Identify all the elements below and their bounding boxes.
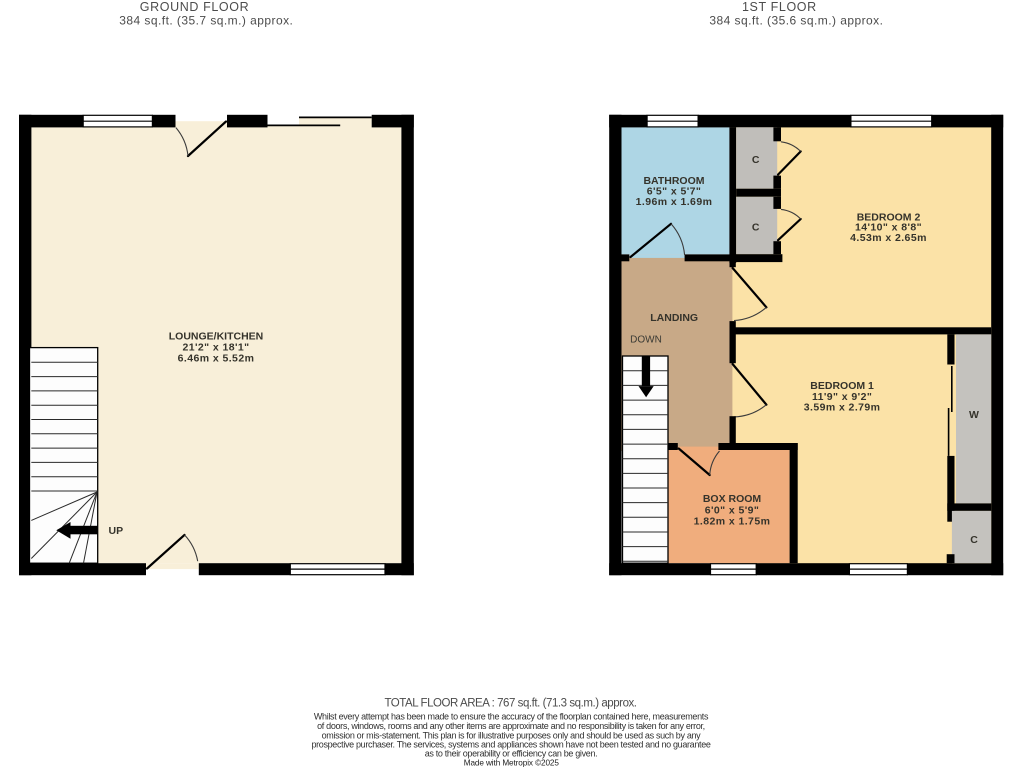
svg-text:C: C	[752, 154, 760, 166]
svg-text:UP: UP	[109, 525, 124, 537]
svg-text:GROUND FLOOR: GROUND FLOOR	[140, 0, 250, 14]
svg-text:W: W	[969, 409, 979, 421]
svg-text:1.96m x 1.69m: 1.96m x 1.69m	[636, 196, 713, 208]
svg-text:LANDING: LANDING	[650, 312, 698, 324]
svg-text:6.46m x 5.52m: 6.46m x 5.52m	[178, 353, 255, 365]
svg-text:3.59m x 2.79m: 3.59m x 2.79m	[804, 402, 881, 414]
svg-text:384 sq.ft. (35.6 sq.m.) approx: 384 sq.ft. (35.6 sq.m.) approx.	[709, 14, 883, 28]
svg-text:C: C	[970, 534, 978, 546]
svg-text:1ST FLOOR: 1ST FLOOR	[742, 0, 817, 14]
svg-text:C: C	[752, 222, 760, 234]
svg-text:Made with Metropix ©2025: Made with Metropix ©2025	[464, 758, 560, 767]
svg-text:4.53m x 2.65m: 4.53m x 2.65m	[850, 232, 927, 244]
svg-text:TOTAL FLOOR AREA : 767 sq.ft.: TOTAL FLOOR AREA : 767 sq.ft. (71.3 sq.m…	[384, 697, 636, 709]
svg-text:6'0" x 5'9": 6'0" x 5'9"	[705, 504, 760, 516]
svg-text:BOX ROOM: BOX ROOM	[703, 493, 762, 505]
svg-text:as to their operability or eff: as to their operability or efficiency ca…	[425, 749, 598, 759]
svg-text:384 sq.ft. (35.7 sq.m.) approx: 384 sq.ft. (35.7 sq.m.) approx.	[119, 14, 293, 28]
svg-text:DOWN: DOWN	[630, 334, 662, 345]
svg-text:1.82m x 1.75m: 1.82m x 1.75m	[694, 516, 771, 528]
